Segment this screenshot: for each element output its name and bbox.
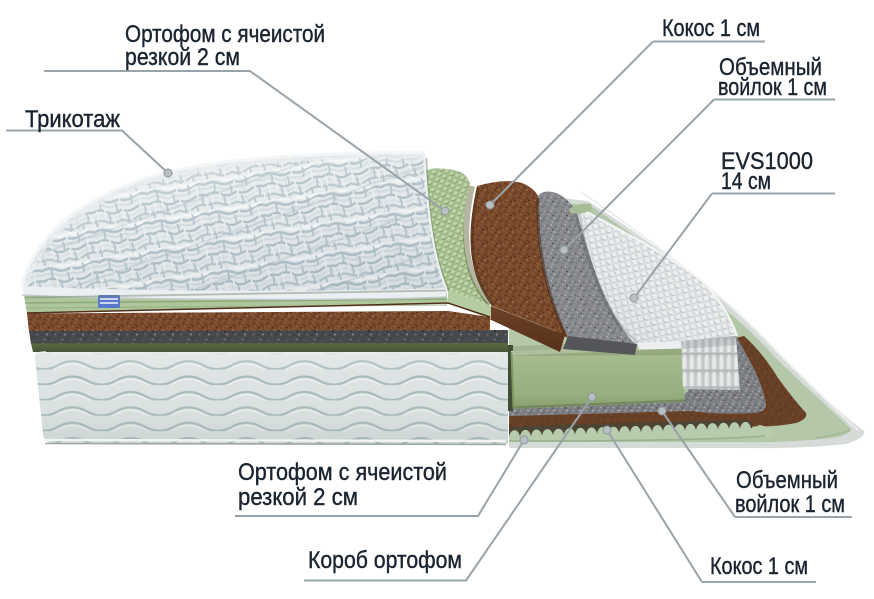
svg-text:войлок 1 см: войлок 1 см (718, 74, 827, 101)
svg-text:Трикотаж: Трикотаж (25, 106, 120, 133)
svg-text:Ортофом с ячеистой: Ортофом с ячеистой (238, 459, 447, 486)
svg-text:Кокос 1 см: Кокос 1 см (662, 15, 760, 42)
svg-text:Кокос 1 см: Кокос 1 см (710, 553, 808, 580)
svg-text:Объемный: Объемный (736, 467, 838, 494)
svg-text:Короб ортофом: Короб ортофом (308, 547, 462, 574)
svg-text:14 см: 14 см (721, 168, 771, 195)
svg-text:войлок 1 см: войлок 1 см (735, 491, 845, 518)
svg-text:резкой 2 см: резкой 2 см (125, 44, 240, 71)
svg-text:резкой 2 см: резкой 2 см (238, 484, 358, 511)
